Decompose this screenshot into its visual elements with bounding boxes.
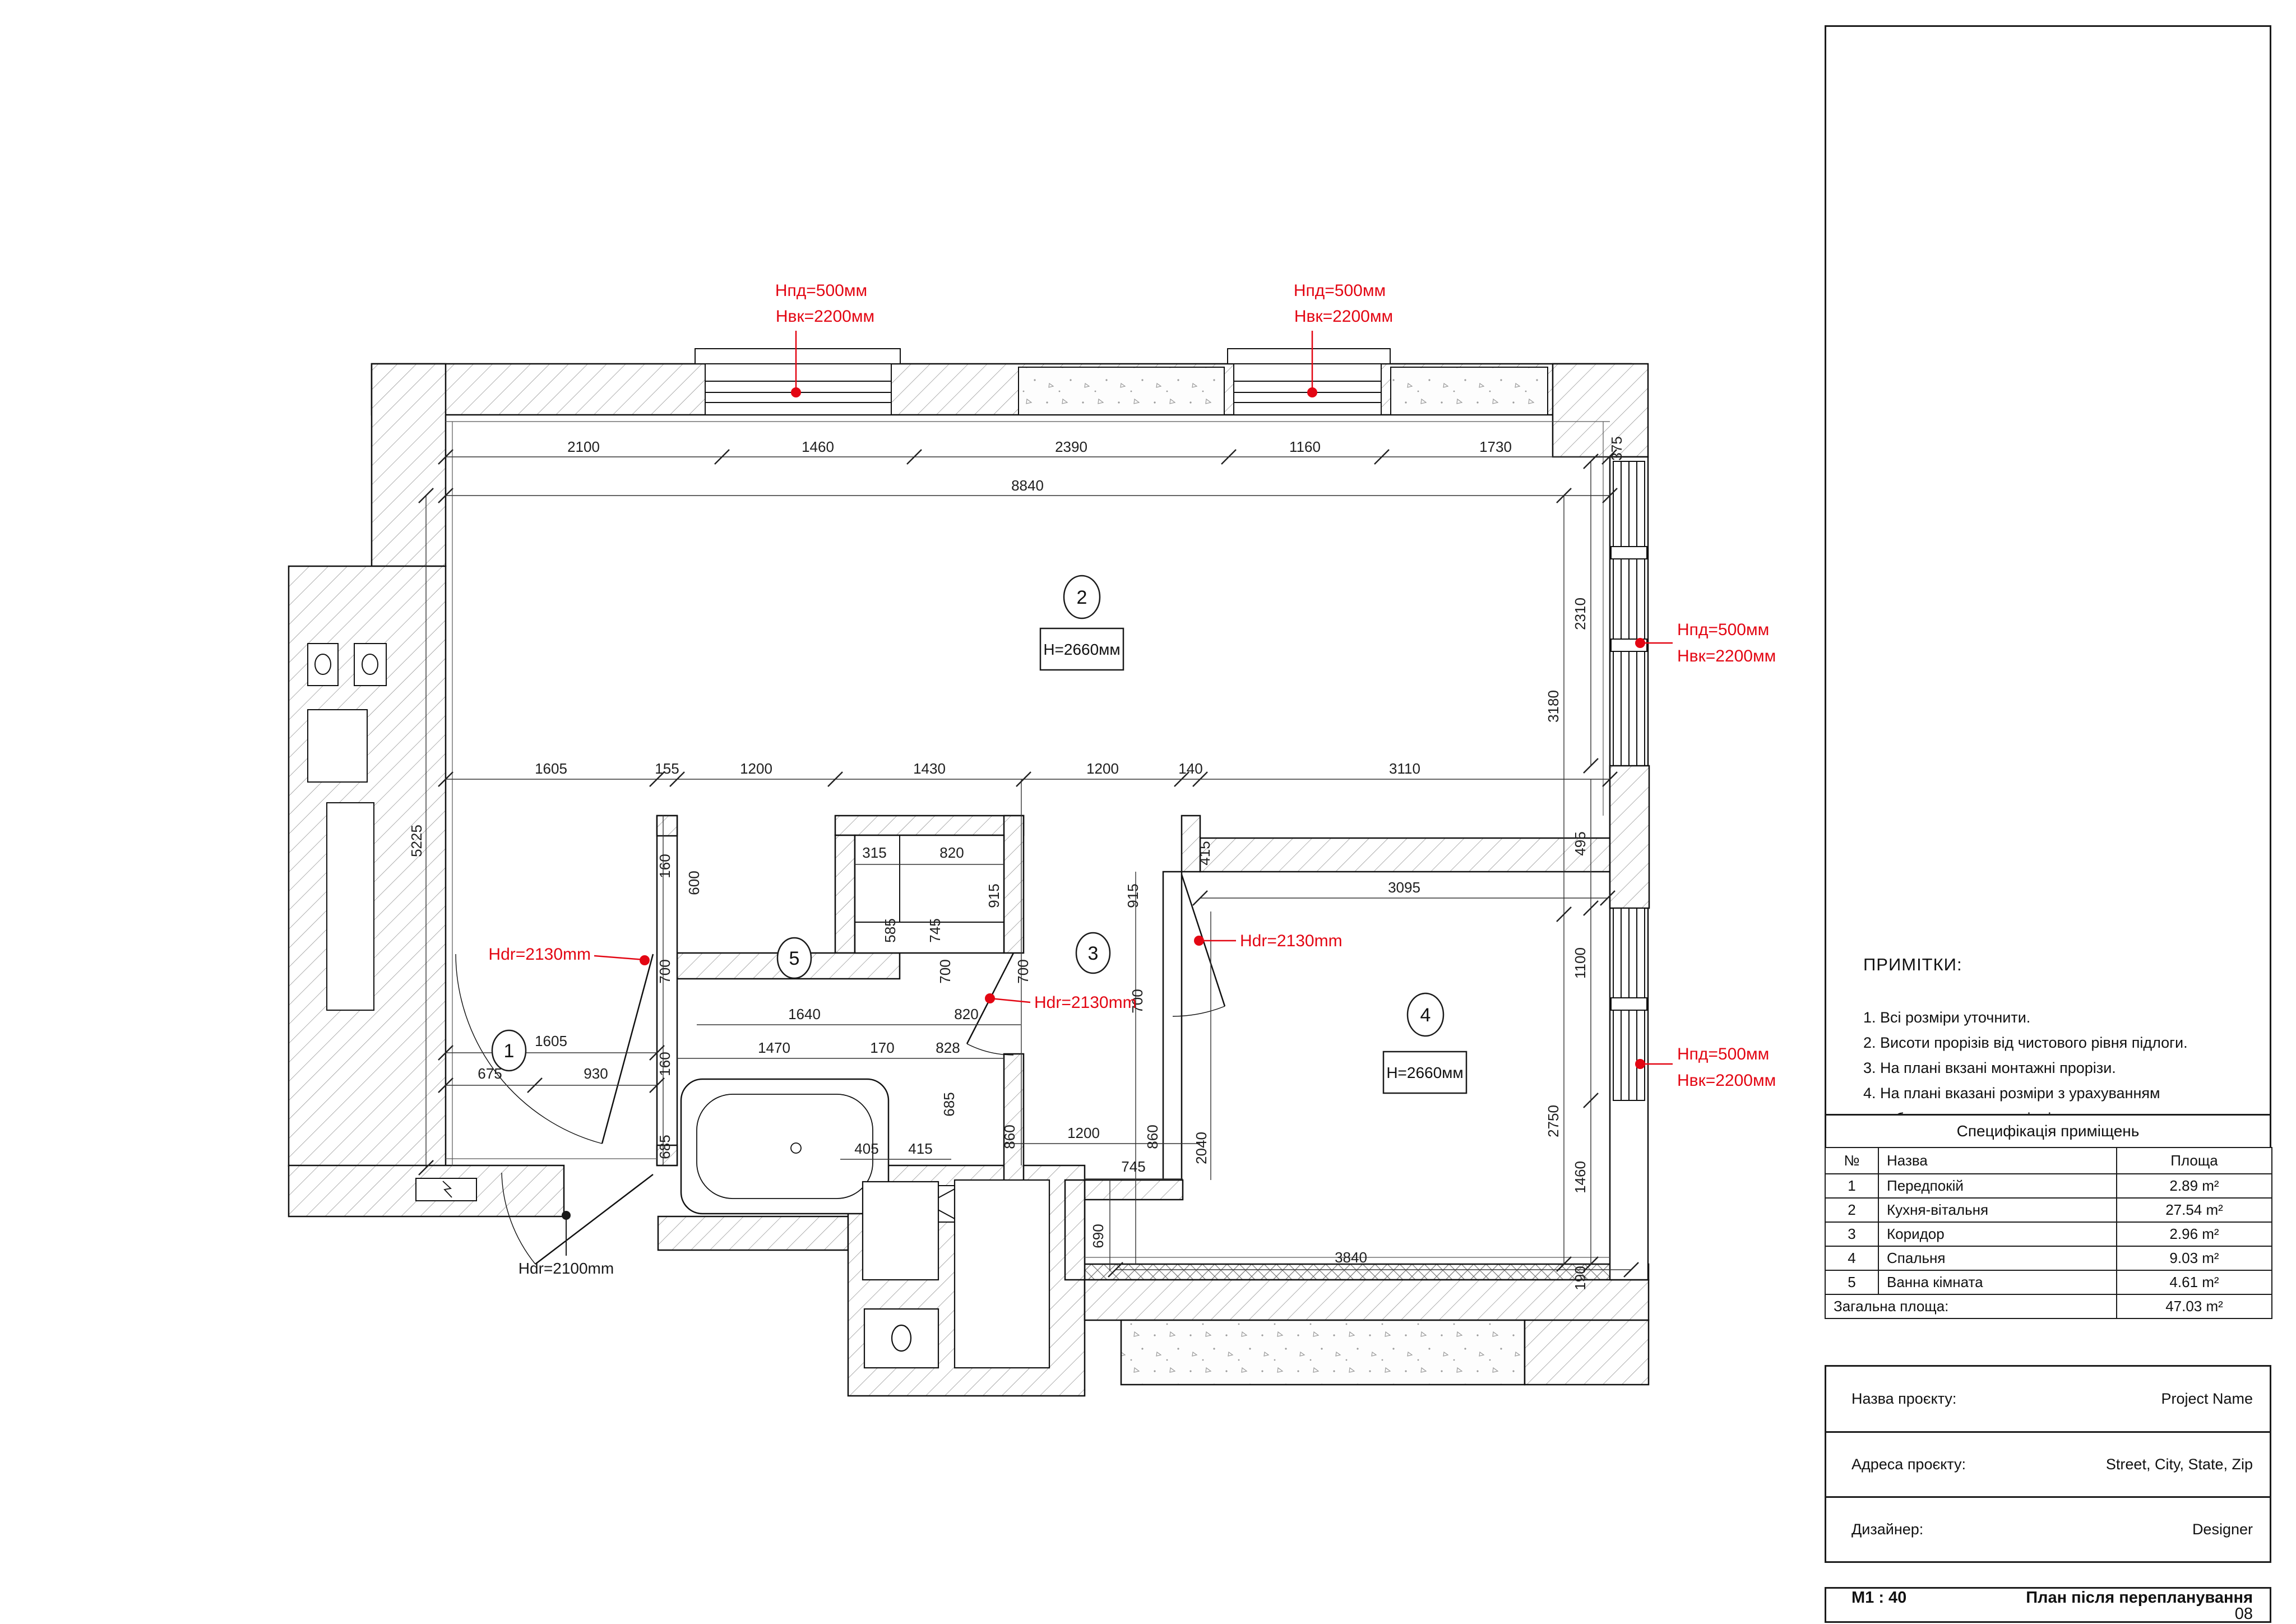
sheet-title: План після перепланування <box>2026 1589 2253 1607</box>
window-height-label: Hпд=500мм <box>775 281 867 300</box>
dim-label: 190 <box>1572 1266 1589 1290</box>
dim-label: 2750 <box>1545 1105 1562 1137</box>
dim-label: 820 <box>954 1006 978 1022</box>
project-address-row: Адреса проєкту: Street, City, State, Zip <box>1826 1431 2270 1496</box>
dim-label: 915 <box>1124 883 1141 908</box>
dim-label: 1470 <box>758 1039 790 1056</box>
window-height-label: Hвк=2200мм <box>1677 1071 1776 1090</box>
dim-label: 700 <box>1015 959 1031 983</box>
dim-label: 8840 <box>1011 477 1044 494</box>
window-height-label: Hпд=500мм <box>1677 1045 1769 1063</box>
page-number: 08 <box>2235 1605 2253 1623</box>
dim-label: 160 <box>656 1052 673 1076</box>
dim-label: 315 <box>862 844 886 861</box>
door-height-label: Hdr=2130mm <box>1034 993 1137 1012</box>
spec-table: № Назва Площа 1 Передпокій 2.89 m² 2 Кух… <box>1825 1147 2271 1319</box>
field-label: Назва проєкту: <box>1851 1390 1956 1408</box>
dim-label: 1605 <box>535 760 567 777</box>
dim-label: 700 <box>656 959 673 983</box>
total-value: 47.03 m² <box>2117 1294 2272 1318</box>
table-row: 1 Передпокій 2.89 m² <box>1825 1174 2272 1198</box>
dim-label: 820 <box>939 844 964 861</box>
field-label: Дизайнер: <box>1851 1521 1923 1538</box>
dim-label: 745 <box>1121 1158 1145 1175</box>
page-number-bar: 08 <box>1825 1607 2271 1623</box>
dim-label: 415 <box>908 1140 932 1157</box>
dim-label: 415 <box>1196 841 1213 865</box>
entry-door-label: Hdr=2100mm <box>519 1211 614 1277</box>
table-row: 4 Спальня 9.03 m² <box>1825 1246 2272 1270</box>
sheet-title-bar: M1 : 40 План після перепланування <box>1825 1587 2271 1609</box>
dim-label: 3110 <box>1389 760 1420 777</box>
dim-label: 1200 <box>740 760 772 777</box>
svg-text:Hdr=2100mm: Hdr=2100mm <box>519 1260 614 1277</box>
top-windows <box>695 349 1548 415</box>
dim-label: 2100 <box>567 438 600 455</box>
right-windows <box>1610 461 1649 1100</box>
dim-label: 2040 <box>1193 1132 1210 1164</box>
dim-label: 1730 <box>1479 438 1512 455</box>
note-item: 2. Висоти прорізів від чистового рівня п… <box>1863 1030 2247 1056</box>
spec-header-area: Площа <box>2117 1148 2272 1174</box>
note-item: 1. Всі розміри уточнити. <box>1863 1005 2247 1030</box>
dim-label: 745 <box>927 918 943 942</box>
scale-label: M1 : 40 <box>1851 1589 1906 1607</box>
field-value: Designer <box>2192 1521 2253 1538</box>
dim-label: 700 <box>937 959 953 983</box>
dim-label: 495 <box>1572 831 1589 855</box>
dim-label: 2390 <box>1055 438 1087 455</box>
door-height-label: Hdr=2130mm <box>488 945 591 964</box>
notes-box: ПРИМІТКИ: 1. Всі розміри уточнити. 2. Ви… <box>1825 25 2271 1116</box>
window-height-label: Hвк=2200мм <box>1677 647 1776 665</box>
dim-label: 405 <box>854 1140 878 1157</box>
spec-header-num: № <box>1825 1148 1878 1174</box>
dim-label: 155 <box>655 760 679 777</box>
room-number: 5 <box>789 948 800 969</box>
dim-label: 1640 <box>788 1006 821 1022</box>
dim-label: 690 <box>1090 1224 1107 1248</box>
project-info-box: Назва проєкту: Project Name Адреса проєк… <box>1825 1365 2271 1563</box>
room-number: 2 <box>1077 587 1087 608</box>
notes-title: ПРИМІТКИ: <box>1863 955 1962 975</box>
room-number: 1 <box>504 1040 515 1062</box>
table-row: 5 Ванна кімната 4.61 m² <box>1825 1270 2272 1294</box>
dim-label: 860 <box>1144 1125 1161 1149</box>
dim-label: 3840 <box>1335 1249 1367 1266</box>
window-height-label: Hвк=2200мм <box>776 307 874 326</box>
table-row: 2 Кухня-вітальня 27.54 m² <box>1825 1198 2272 1222</box>
dim-label: 1100 <box>1572 947 1589 979</box>
dim-label: 3180 <box>1545 690 1562 723</box>
project-name-row: Назва проєкту: Project Name <box>1826 1367 2270 1431</box>
dim-label: 585 <box>882 918 899 942</box>
ceiling-height-label: H=2660мм <box>1043 641 1120 658</box>
utility-shaft-boxes <box>863 1180 1049 1368</box>
field-value: Project Name <box>2161 1390 2253 1408</box>
dim-label: 685 <box>941 1092 957 1116</box>
dim-label: 930 <box>584 1065 608 1082</box>
door-height-label: Hdr=2130mm <box>1240 932 1343 950</box>
window-height-label: Hвк=2200мм <box>1294 307 1393 326</box>
dim-label: 860 <box>1001 1125 1018 1149</box>
window-height-label: Hпд=500мм <box>1294 281 1386 300</box>
dim-label: 1200 <box>1086 760 1119 777</box>
dim-label: 1160 <box>1289 438 1321 455</box>
dim-label: 915 <box>985 883 1002 908</box>
dim-label: 600 <box>686 871 702 895</box>
field-value: Street, City, State, Zip <box>2106 1456 2253 1473</box>
dim-label: 170 <box>870 1039 894 1056</box>
dim-label: 5225 <box>408 825 425 857</box>
table-total-row: Загальна площа: 47.03 m² <box>1825 1294 2272 1318</box>
dim-label: 685 <box>656 1135 673 1159</box>
designer-row: Дизайнер: Designer <box>1826 1496 2270 1561</box>
total-label: Загальна площа: <box>1825 1294 2117 1318</box>
dim-label: 1200 <box>1067 1125 1100 1141</box>
dim-label: 828 <box>936 1039 960 1056</box>
table-row: 3 Коридор 2.96 m² <box>1825 1222 2272 1246</box>
drawing-sheet: 2100 1460 2390 1160 1730 375 8840 5225 1… <box>0 0 2296 1624</box>
dim-label: 1430 <box>913 760 946 777</box>
window-height-label: Hпд=500мм <box>1677 621 1769 639</box>
field-label: Адреса проєкту: <box>1851 1456 1966 1473</box>
ceiling-height-label: H=2660мм <box>1386 1064 1463 1081</box>
spec-header-name: Назва <box>1878 1148 2117 1174</box>
dim-label: 375 <box>1608 436 1625 460</box>
dim-label: 3095 <box>1388 879 1420 896</box>
dim-label: 1460 <box>802 438 834 455</box>
dim-label: 675 <box>478 1065 502 1082</box>
dim-label: 160 <box>656 854 673 878</box>
dim-label: 2310 <box>1572 598 1589 630</box>
dim-label: 140 <box>1178 760 1202 777</box>
note-item: 3. На плані вкзані монтажні прорізи. <box>1863 1056 2247 1081</box>
dim-label: 1605 <box>535 1033 567 1049</box>
spec-title: Специфікація приміщень <box>1825 1114 2271 1149</box>
room-number: 4 <box>1420 1005 1431 1026</box>
dim-label: 1460 <box>1572 1161 1589 1193</box>
room-number: 3 <box>1088 943 1099 964</box>
electrical-panel <box>416 1178 476 1201</box>
note-item: 4. На плані вказані розміри з урахування… <box>1863 1081 2247 1106</box>
